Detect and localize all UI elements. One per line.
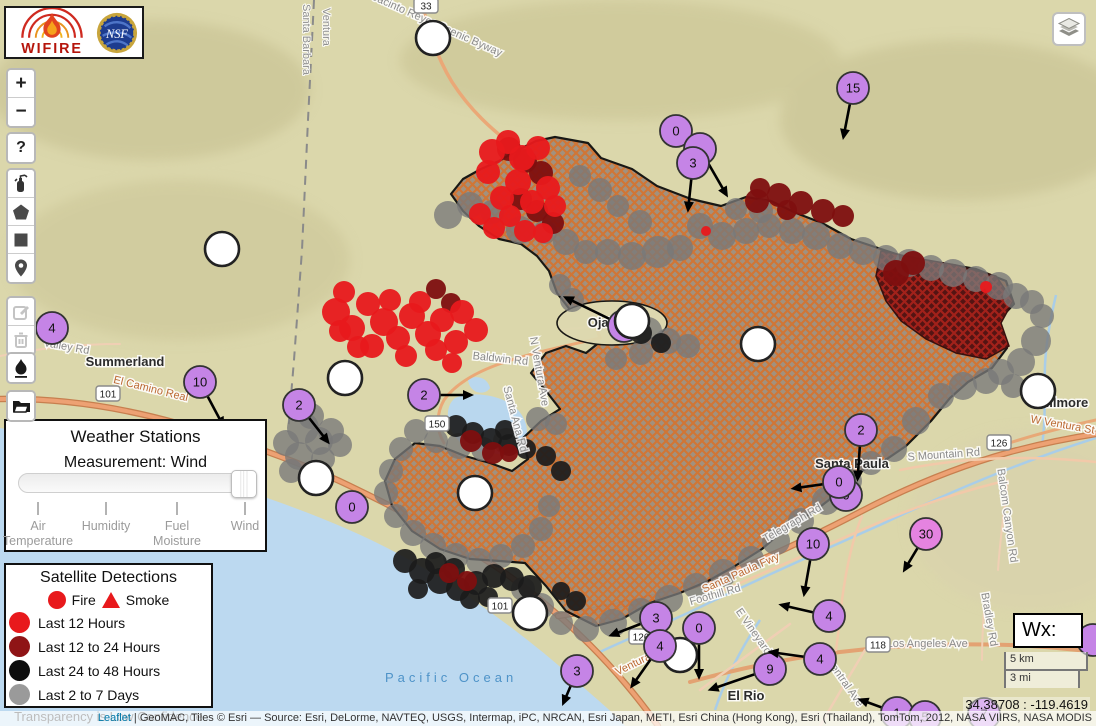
wind-speed-value: 2 bbox=[857, 423, 864, 438]
slider-label-air-temperature[interactable]: AirTemperature bbox=[3, 519, 73, 549]
delete-layers-button[interactable] bbox=[8, 326, 34, 354]
help-button[interactable]: ? bbox=[8, 134, 34, 162]
red-detection-dot bbox=[444, 330, 468, 354]
weather-station-circle[interactable] bbox=[513, 596, 547, 630]
layers-icon bbox=[1057, 18, 1081, 40]
gray-detection-dot bbox=[374, 481, 398, 505]
slider-tick bbox=[244, 502, 246, 515]
gray-detection-dot bbox=[849, 237, 877, 265]
wind-speed-value: 0 bbox=[695, 621, 702, 636]
map-marker-icon bbox=[13, 258, 29, 278]
legend-title: Satellite Detections bbox=[6, 569, 211, 587]
legend-row: Last 12 Hours bbox=[6, 612, 211, 633]
gray-detection-dot bbox=[529, 517, 553, 541]
darkred-detection-dot bbox=[460, 430, 482, 452]
gray-detection-dot bbox=[538, 495, 560, 517]
red-detection-dot bbox=[395, 345, 417, 367]
darkred-detection-dot bbox=[901, 251, 925, 275]
weather-station-circle[interactable] bbox=[741, 327, 775, 361]
polygon-icon bbox=[12, 203, 30, 221]
gray-detection-dot bbox=[667, 235, 693, 261]
rectangle-tool-button[interactable] bbox=[8, 226, 34, 254]
wind-speed-value: 2 bbox=[420, 388, 427, 403]
gray-detection-dot bbox=[973, 368, 999, 394]
wind-arrow-head bbox=[801, 585, 811, 597]
nsf-logo: NSF bbox=[95, 10, 139, 56]
black-detection-dot bbox=[651, 333, 671, 353]
gray-detection-dot bbox=[569, 165, 591, 187]
wind-arrow-head bbox=[630, 677, 640, 689]
extinguisher-tool-button[interactable] bbox=[8, 170, 34, 198]
zoom-control: + − bbox=[6, 68, 36, 128]
county-label: Santa Barbara bbox=[300, 4, 312, 76]
red-detection-dot bbox=[329, 320, 351, 342]
attribution-bar: Leaflet | GeoMAC, Tiles © Esri — Source:… bbox=[0, 711, 1096, 726]
weather-station-marker[interactable] bbox=[328, 361, 362, 395]
town-label: Santa Paula bbox=[815, 456, 889, 471]
wifire-logo: WIFIRE bbox=[9, 8, 95, 57]
wind-speed-value: 2 bbox=[295, 398, 302, 413]
wind-speed-value: 0 bbox=[835, 475, 842, 490]
highway-shield-label: 101 bbox=[492, 602, 509, 613]
folder-control bbox=[6, 390, 36, 422]
zoom-out-button[interactable]: − bbox=[8, 98, 34, 126]
open-folder-button[interactable] bbox=[8, 392, 34, 420]
darkred-detection-dot bbox=[811, 199, 835, 223]
gray-detection-dot bbox=[389, 437, 413, 461]
gray-detection-dot bbox=[605, 348, 627, 370]
weather-stations-panel: Weather Stations Measurement: Wind AirTe… bbox=[4, 419, 267, 552]
wind-speed-value: 9 bbox=[766, 662, 773, 677]
weather-panel-measurement: Measurement: Wind bbox=[6, 454, 265, 472]
black-detection-dot bbox=[536, 446, 556, 466]
darkred-detection-dot bbox=[832, 205, 854, 227]
gray-detection-dot bbox=[379, 459, 403, 483]
help-control: ? bbox=[6, 132, 36, 164]
app: Santa BarbaraVenturaValley RdEl Camino R… bbox=[0, 0, 1096, 726]
darkred-detection-dot bbox=[777, 200, 797, 220]
rectangle-icon bbox=[13, 232, 29, 248]
black-detection-dot bbox=[552, 582, 570, 600]
red-detection-dot bbox=[476, 160, 500, 184]
highway-shield-label: 126 bbox=[991, 439, 1008, 450]
smoke-label: Smoke bbox=[126, 592, 170, 608]
legend-row: Last 2 to 7 Days bbox=[6, 684, 211, 705]
weather-station-marker[interactable]: 0 bbox=[336, 491, 368, 523]
gray-detection-dot bbox=[511, 534, 535, 558]
scale-mi: 3 mi bbox=[1004, 669, 1080, 688]
legend-row-label: Last 12 to 24 Hours bbox=[38, 639, 160, 655]
slider-tick bbox=[105, 502, 107, 515]
wind-speed-value: 4 bbox=[825, 609, 832, 624]
gray-detection-dot bbox=[618, 242, 646, 270]
slider-label-wind[interactable]: Wind bbox=[231, 519, 259, 534]
town-label: El Rio bbox=[728, 688, 765, 703]
gray-detection-dot bbox=[902, 407, 930, 435]
red-detection-dot bbox=[347, 336, 369, 358]
weather-station-circle[interactable] bbox=[1021, 374, 1055, 408]
county-label: Ventura bbox=[320, 8, 332, 47]
gray-detection-dot bbox=[607, 195, 629, 217]
measurement-slider[interactable] bbox=[18, 473, 256, 493]
darkred-detection-dot bbox=[500, 444, 518, 462]
red-detection-dot bbox=[442, 353, 462, 373]
flame-icon bbox=[13, 358, 29, 378]
legend-row-label: Last 2 to 7 Days bbox=[38, 687, 139, 703]
highway-shield-label: 118 bbox=[870, 641, 886, 652]
weather-station-circle[interactable] bbox=[328, 361, 362, 395]
weather-station-circle[interactable] bbox=[615, 304, 649, 338]
wind-speed-value: 0 bbox=[672, 124, 679, 139]
red-detection-dot bbox=[333, 281, 355, 303]
gray-detection-dot bbox=[628, 210, 652, 234]
gray-detection-dot bbox=[1030, 304, 1054, 328]
scale-control: 5 km 3 mi bbox=[1004, 652, 1088, 688]
weather-station-marker[interactable]: 10 bbox=[797, 528, 829, 597]
wind-speed-value: 4 bbox=[816, 652, 823, 667]
wind-speed-value: 4 bbox=[656, 639, 663, 654]
gray-detection-dot bbox=[802, 222, 830, 250]
gray-detection-dot bbox=[708, 222, 736, 250]
wind-speed-value: 3 bbox=[652, 611, 659, 626]
red-detection-dot bbox=[526, 136, 550, 160]
svg-text:WIFIRE: WIFIRE bbox=[21, 41, 83, 57]
wind-speed-value: 30 bbox=[919, 527, 933, 542]
weather-station-marker[interactable] bbox=[416, 21, 450, 55]
leaflet-link[interactable]: Leaflet bbox=[98, 712, 131, 724]
red-detection-dot bbox=[464, 318, 488, 342]
weather-station-marker[interactable] bbox=[205, 232, 239, 266]
red-detection-dot bbox=[409, 291, 431, 313]
attribution-text: | GeoMAC, Tiles © Esri — Source: Esri, D… bbox=[131, 712, 1092, 724]
ignition-control bbox=[6, 352, 36, 384]
smoke-symbol bbox=[102, 592, 120, 608]
red-detection-dot bbox=[980, 281, 992, 293]
legend-swatch bbox=[9, 612, 30, 633]
legend-symbols-row: Fire Smoke bbox=[6, 591, 211, 609]
red-detection-dot bbox=[544, 195, 566, 217]
wind-speed-value: 15 bbox=[846, 81, 860, 96]
darkred-detection-dot bbox=[439, 563, 459, 583]
weather-station-circle[interactable] bbox=[299, 461, 333, 495]
road-label: El Camino Real bbox=[112, 374, 189, 404]
darkred-detection-dot bbox=[457, 571, 477, 591]
weather-station-marker[interactable] bbox=[1021, 374, 1055, 408]
highway-shield-label: 150 bbox=[429, 420, 446, 431]
red-detection-dot bbox=[533, 223, 553, 243]
weather-station-circle[interactable] bbox=[458, 476, 492, 510]
folder-icon bbox=[12, 398, 31, 414]
gray-detection-dot bbox=[725, 198, 747, 220]
slider-label-humidity[interactable]: Humidity bbox=[82, 519, 131, 534]
red-detection-dot bbox=[379, 289, 401, 311]
weather-station-marker[interactable] bbox=[299, 461, 333, 495]
wx-readout-box[interactable]: Wx: bbox=[1013, 613, 1083, 648]
weather-station-marker[interactable]: 4 bbox=[778, 600, 845, 632]
weather-panel-title: Weather Stations bbox=[6, 427, 265, 447]
gray-detection-dot bbox=[629, 341, 653, 365]
highway-shield-label: 33 bbox=[420, 2, 432, 13]
zoom-in-button[interactable]: + bbox=[8, 70, 34, 98]
edit-control bbox=[6, 296, 36, 356]
gray-detection-dot bbox=[574, 240, 598, 264]
slider-tick bbox=[176, 502, 178, 515]
wind-speed-value: 3 bbox=[573, 664, 580, 679]
highway-shield-label: 101 bbox=[100, 390, 117, 401]
gray-detection-dot bbox=[928, 383, 954, 409]
legend-swatch bbox=[9, 660, 30, 681]
wind-speed-value: 10 bbox=[193, 375, 207, 390]
legend-row: Last 12 to 24 Hours bbox=[6, 636, 211, 657]
weather-station-circle[interactable] bbox=[416, 21, 450, 55]
slider-tick bbox=[37, 502, 39, 515]
gray-detection-dot bbox=[273, 430, 299, 456]
gray-detection-dot bbox=[545, 413, 567, 435]
ignition-tool-button[interactable] bbox=[8, 354, 34, 382]
wind-speed-value: 3 bbox=[689, 156, 696, 171]
black-detection-dot bbox=[551, 461, 571, 481]
legend-row-label: Last 12 Hours bbox=[38, 615, 125, 631]
slider-handle[interactable] bbox=[231, 470, 257, 498]
gray-detection-dot bbox=[733, 218, 759, 244]
edit-icon bbox=[12, 303, 30, 321]
legend-swatch bbox=[9, 684, 30, 705]
mouse-coordinates: 34.38708 : -119.4619 bbox=[963, 697, 1090, 712]
extinguisher-icon bbox=[12, 174, 30, 194]
legend-swatch bbox=[9, 636, 30, 657]
wind-speed-value: 10 bbox=[806, 537, 820, 552]
fire-label: Fire bbox=[72, 592, 96, 608]
gray-detection-dot bbox=[827, 233, 853, 259]
edit-layers-button[interactable] bbox=[8, 298, 34, 326]
wind-arrow-head bbox=[778, 602, 790, 612]
marker-tool-button[interactable] bbox=[8, 254, 34, 282]
polygon-tool-button[interactable] bbox=[8, 198, 34, 226]
ocean-label: Pacific Ocean bbox=[385, 670, 517, 685]
gray-detection-dot bbox=[573, 616, 599, 642]
gray-detection-dot bbox=[676, 334, 700, 358]
red-detection-dot bbox=[514, 220, 536, 242]
black-detection-dot bbox=[408, 579, 428, 599]
gray-detection-dot bbox=[549, 274, 571, 296]
wind-speed-value: 4 bbox=[48, 321, 55, 336]
darkred-detection-dot bbox=[750, 178, 770, 198]
gray-detection-dot bbox=[595, 239, 621, 265]
weather-station-marker[interactable] bbox=[458, 476, 492, 510]
road-label: Baldwin Rd bbox=[472, 350, 529, 368]
gray-detection-dot bbox=[549, 611, 573, 635]
slider-label-fuel-moisture[interactable]: FuelMoisture bbox=[153, 519, 201, 549]
fire-symbol bbox=[48, 591, 66, 609]
layers-control[interactable] bbox=[1052, 12, 1086, 46]
black-detection-dot bbox=[460, 589, 480, 609]
logo-box: WIFIRE NSF bbox=[4, 6, 144, 59]
satellite-detections-panel: Satellite Detections Fire Smoke Last 12 … bbox=[4, 563, 213, 708]
svg-text:NSF: NSF bbox=[105, 26, 128, 40]
gray-detection-dot bbox=[779, 218, 805, 244]
weather-station-circle[interactable] bbox=[205, 232, 239, 266]
weather-station-marker[interactable] bbox=[513, 596, 547, 630]
town-label: Summerland bbox=[86, 354, 165, 369]
gray-detection-dot bbox=[328, 433, 352, 457]
gray-detection-dot bbox=[588, 178, 612, 202]
red-detection-dot bbox=[701, 226, 711, 236]
wind-speed-value: 0 bbox=[348, 500, 355, 515]
trash-icon bbox=[13, 331, 29, 349]
legend-row-label: Last 24 to 48 Hours bbox=[38, 663, 160, 679]
legend-row: Last 24 to 48 Hours bbox=[6, 660, 211, 681]
weather-station-marker[interactable] bbox=[741, 327, 775, 361]
weather-station-marker[interactable] bbox=[615, 304, 649, 338]
draw-control bbox=[6, 168, 36, 284]
gray-detection-dot bbox=[939, 259, 967, 287]
